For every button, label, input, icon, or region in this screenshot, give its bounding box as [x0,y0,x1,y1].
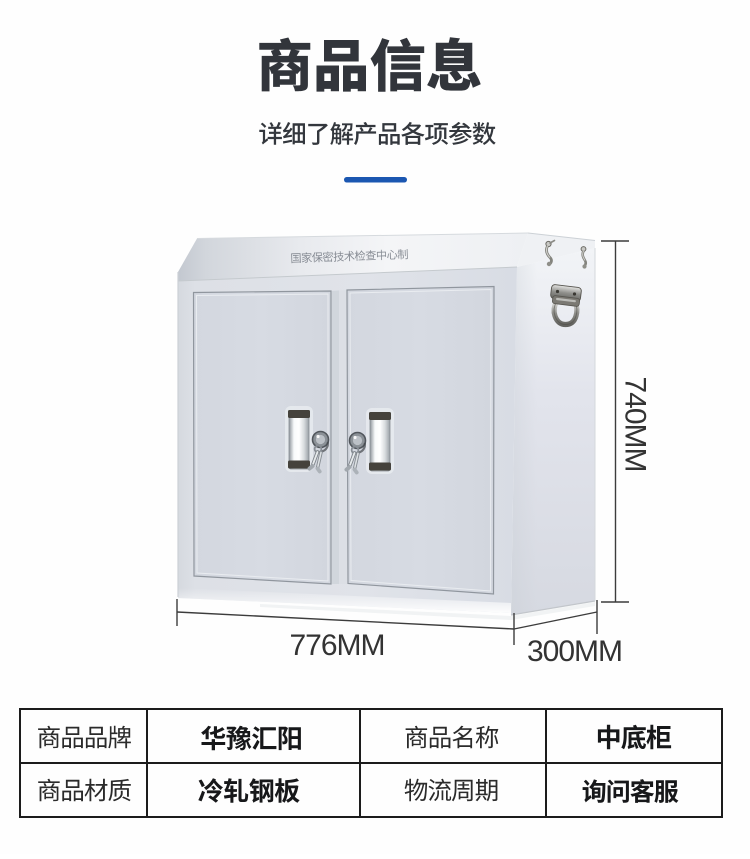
svg-text:740MM: 740MM [619,376,652,471]
svg-text:300MM: 300MM [527,635,622,668]
svg-text:776MM: 776MM [289,629,384,662]
